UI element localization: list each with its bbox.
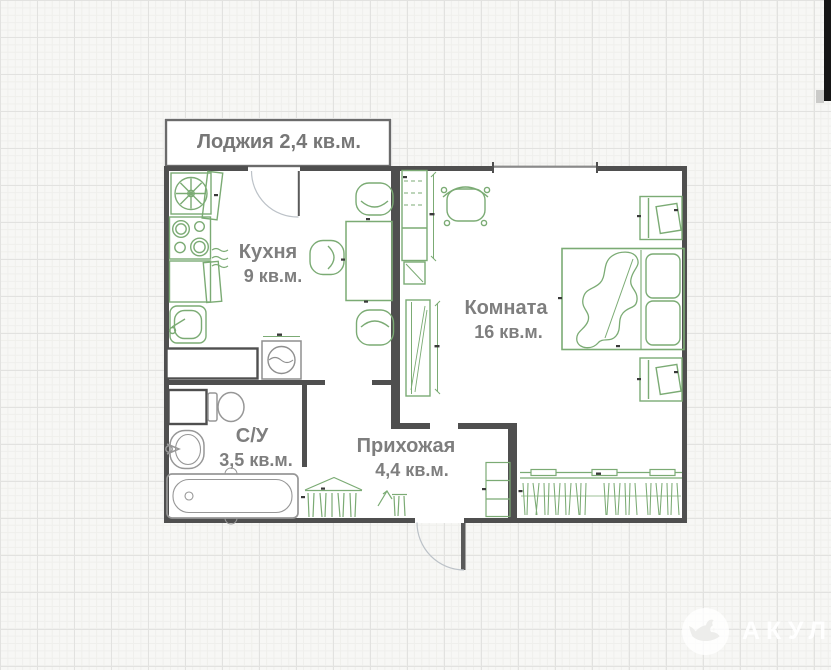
shark-logo-icon [682, 608, 729, 655]
hallway-name: Прихожая [357, 434, 456, 458]
room-name: Комната [464, 296, 547, 320]
kitchen-name: Кухня [234, 240, 302, 264]
label-hallway: Прихожая 4,4 кв.м. [357, 434, 456, 482]
label-kitchen: Кухня 9 кв.м. [234, 240, 302, 288]
label-room: Комната 16 кв.м. [464, 296, 547, 344]
bathroom-area: 3,5 кв.м. [219, 448, 292, 472]
right-edge-black-bar [824, 0, 831, 101]
watermark: АКУЛА [682, 608, 831, 655]
label-bathroom: С/У 3,5 кв.м. [211, 424, 292, 472]
floor-plan [0, 0, 831, 665]
watermark-text: АКУЛА [742, 617, 831, 646]
label-loggia: Лоджия 2,4 кв.м. [197, 130, 361, 154]
hallway-area: 4,4 кв.м. [369, 458, 456, 482]
bathroom-name: С/У [211, 424, 292, 448]
kitchen-area: 9 кв.м. [244, 264, 302, 288]
right-edge-gray-mark [816, 90, 824, 103]
room-area: 16 кв.м. [469, 320, 547, 344]
